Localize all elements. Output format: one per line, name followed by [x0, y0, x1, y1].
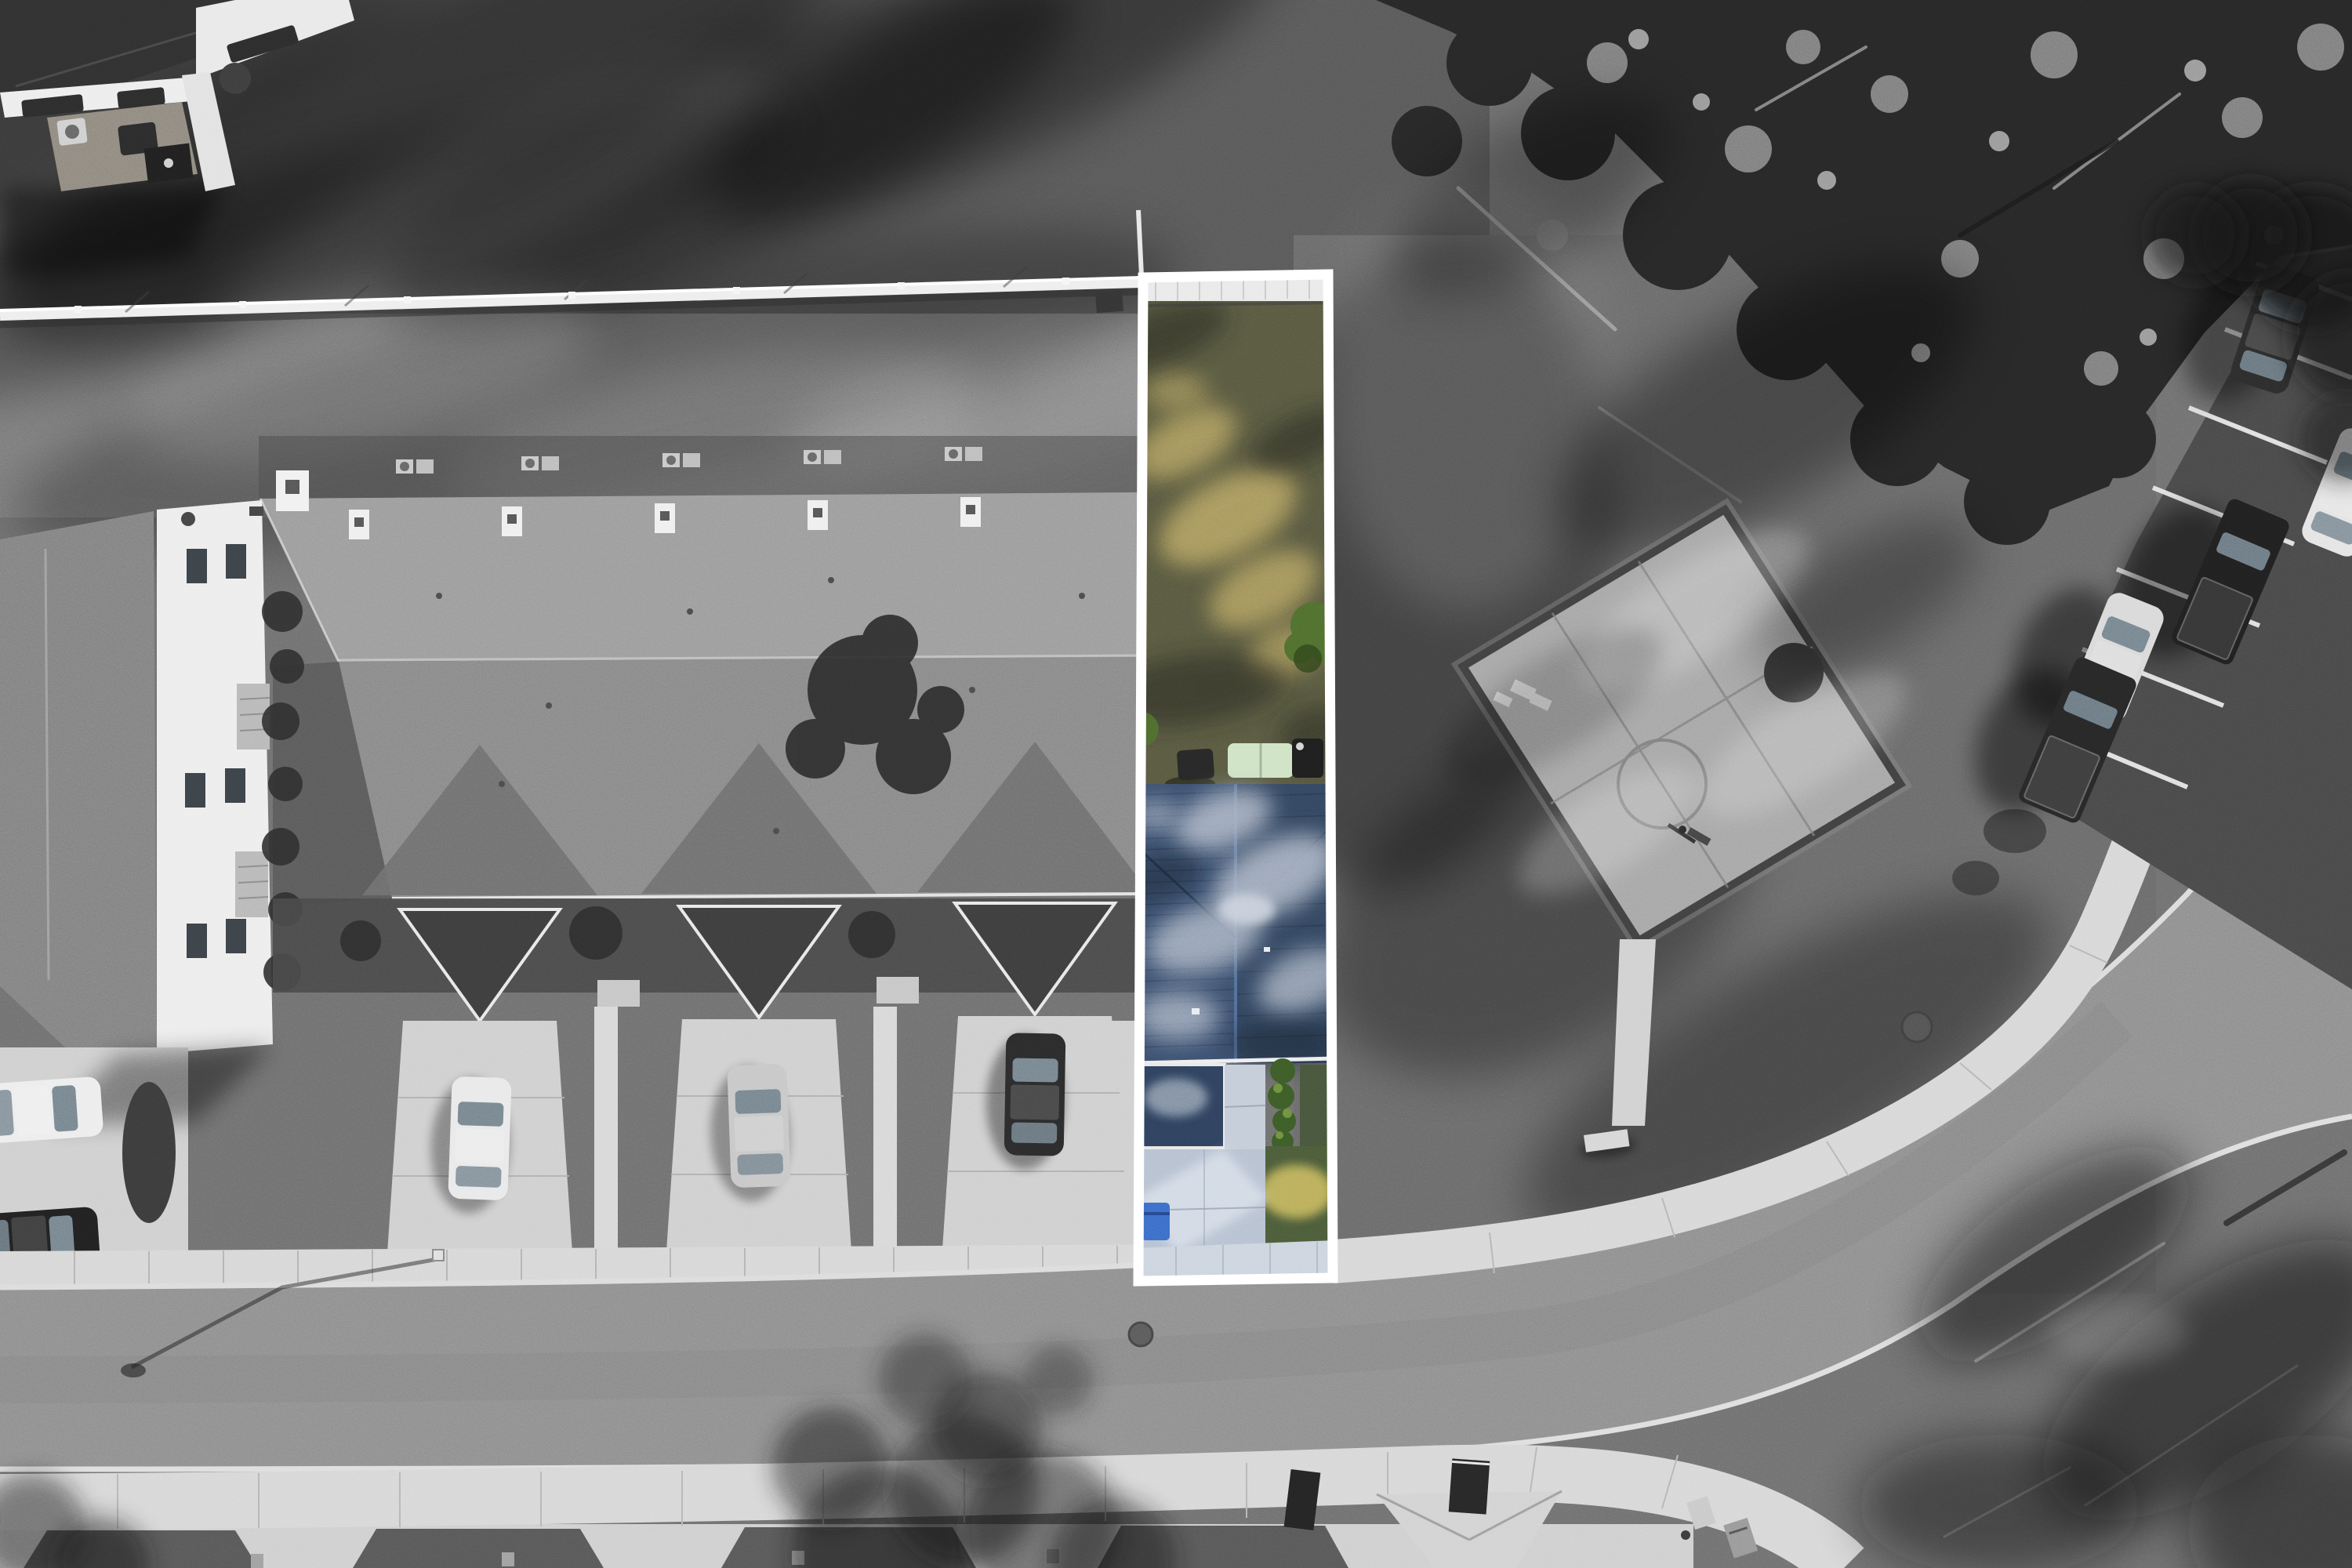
aerial-photo — [0, 0, 2352, 1568]
grain-overlay-fine — [0, 0, 2352, 1568]
